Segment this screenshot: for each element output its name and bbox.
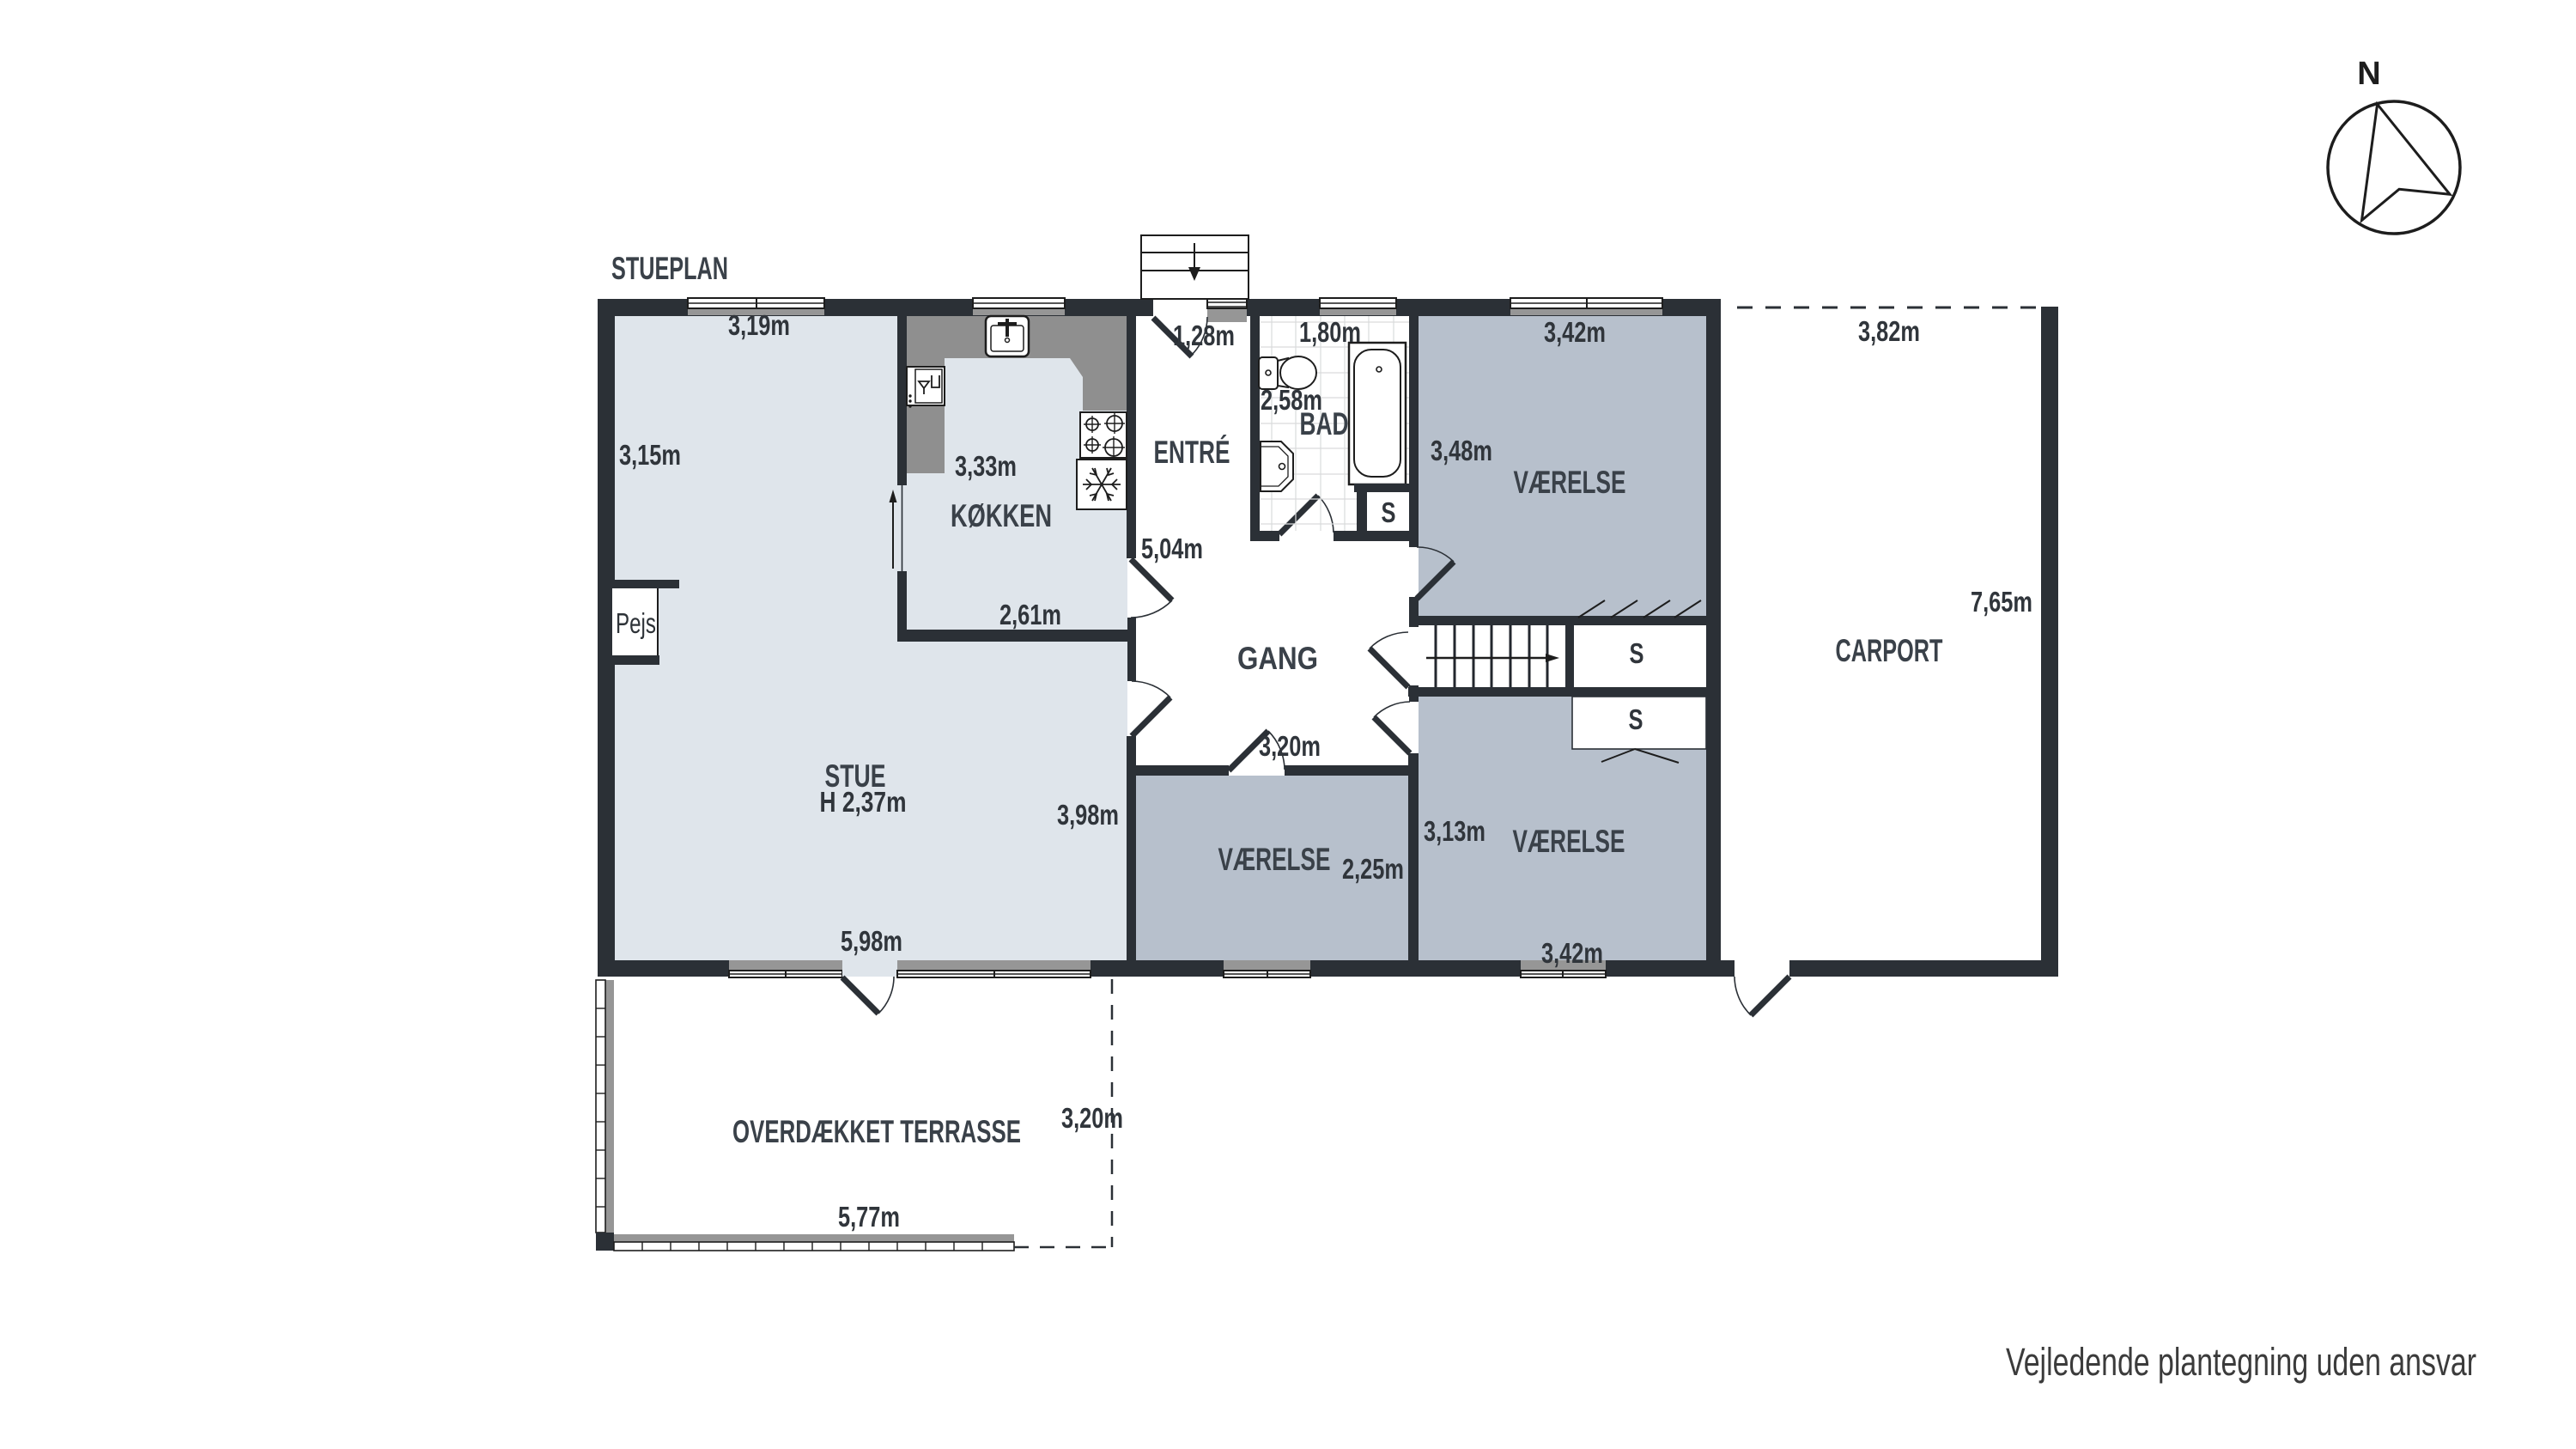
svg-text:3,42m: 3,42m xyxy=(1541,937,1603,969)
svg-text:CARPORT: CARPORT xyxy=(1836,633,1943,668)
svg-text:Pejs: Pejs xyxy=(616,607,656,639)
svg-text:ENTRÉ: ENTRÉ xyxy=(1154,435,1230,470)
svg-text:3,20m: 3,20m xyxy=(1259,730,1321,762)
svg-text:3,19m: 3,19m xyxy=(728,309,790,341)
svg-text:H 2,37m: H 2,37m xyxy=(820,786,907,818)
svg-text:3,42m: 3,42m xyxy=(1544,316,1606,348)
svg-text:S: S xyxy=(1382,496,1396,528)
svg-text:1,28m: 1,28m xyxy=(1173,320,1235,351)
svg-text:3,20m: 3,20m xyxy=(1061,1102,1123,1134)
svg-text:2,25m: 2,25m xyxy=(1342,853,1404,885)
svg-text:3,82m: 3,82m xyxy=(1858,315,1920,347)
svg-text:2,61m: 2,61m xyxy=(999,599,1061,630)
svg-text:3,15m: 3,15m xyxy=(619,439,681,471)
svg-text:GANG: GANG xyxy=(1237,641,1318,676)
svg-text:VÆRELSE: VÆRELSE xyxy=(1218,842,1331,877)
svg-text:2,58m: 2,58m xyxy=(1261,384,1322,416)
svg-text:VÆRELSE: VÆRELSE xyxy=(1513,824,1625,859)
svg-text:S: S xyxy=(1629,703,1643,735)
svg-text:S: S xyxy=(1630,637,1644,669)
svg-text:Vejledende plantegning uden an: Vejledende plantegning uden ansvar xyxy=(2006,1340,2476,1384)
svg-text:STUEPLAN: STUEPLAN xyxy=(611,251,728,286)
svg-text:N: N xyxy=(2357,56,2380,92)
svg-text:5,77m: 5,77m xyxy=(838,1201,900,1233)
svg-text:3,98m: 3,98m xyxy=(1057,799,1119,831)
svg-text:OVERDÆKKET TERRASSE: OVERDÆKKET TERRASSE xyxy=(732,1114,1021,1149)
svg-text:VÆRELSE: VÆRELSE xyxy=(1514,465,1626,500)
svg-text:7,65m: 7,65m xyxy=(1971,586,2032,618)
svg-text:3,33m: 3,33m xyxy=(955,450,1017,482)
svg-text:5,04m: 5,04m xyxy=(1141,533,1203,564)
svg-text:3,48m: 3,48m xyxy=(1431,435,1492,466)
svg-text:5,98m: 5,98m xyxy=(841,925,902,957)
svg-text:3,13m: 3,13m xyxy=(1424,815,1485,847)
svg-text:KØKKEN: KØKKEN xyxy=(951,498,1052,533)
svg-text:1,80m: 1,80m xyxy=(1299,316,1361,348)
